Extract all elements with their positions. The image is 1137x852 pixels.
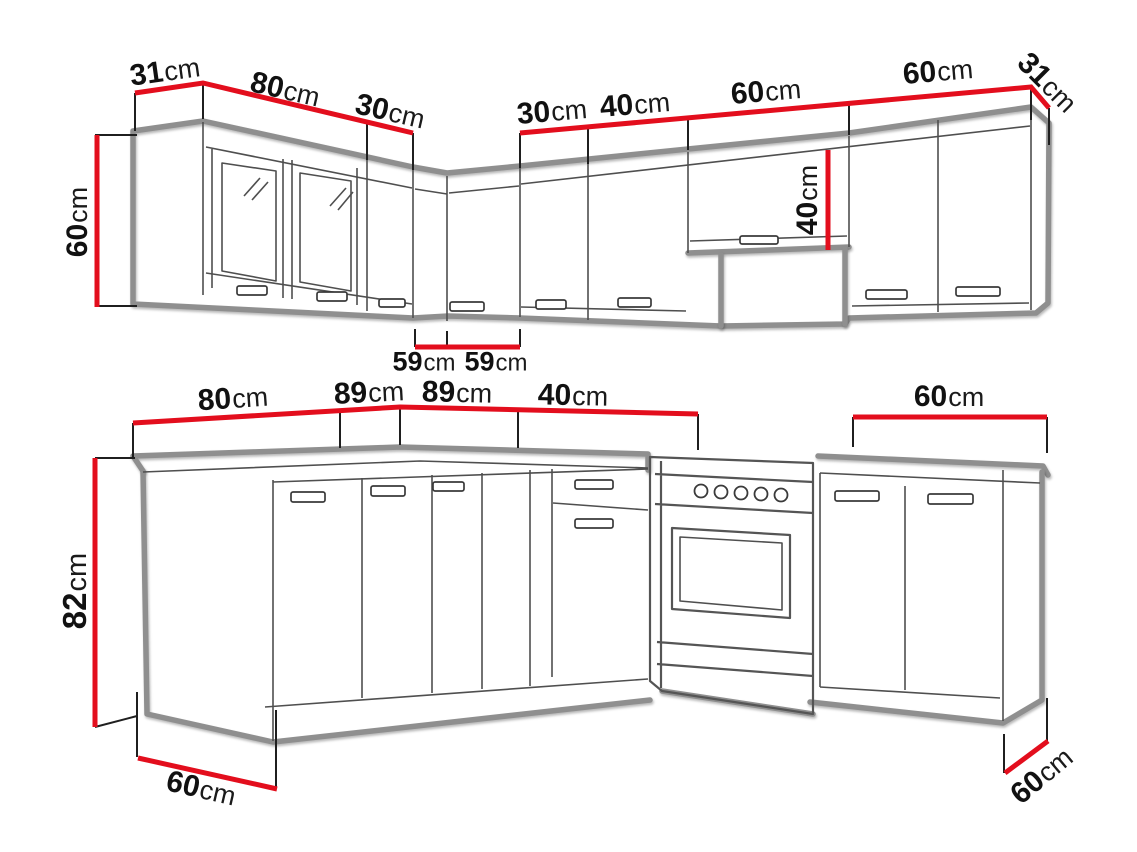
dim-label-wall-double-width: 60cm [902,54,975,90]
dim-label-base-left-width: 89cm [333,376,405,410]
oven-window-inner [680,537,782,610]
dim-label-hood-height: 40cm [793,165,823,235]
cooker-knobs [695,485,788,502]
dim-label-base-height: 82cm [58,553,92,629]
cooker [650,457,813,714]
wall-cabinets-drawing [133,107,1049,326]
dim-label-wall-door40: 40cm [599,87,672,123]
countertop-left [133,447,648,471]
base-cabinets-drawing [133,447,1048,742]
oven-window [672,528,790,618]
dim-label-wall-door30-right: 30cm [516,94,589,130]
dim-label-base-corner-width: 80cm [197,382,269,417]
base-cabinets-details [143,461,1040,741]
base-right-outline [810,472,1042,723]
dim-label-wall-height: 60cm [63,187,93,257]
dim-label-wall-hood-width: 60cm [730,74,803,110]
wall-cabinets-details [203,108,1031,321]
countertop-right [818,456,1048,475]
dim-label-corner-depth-a: 59cm [392,349,455,376]
glass-shine-marks [244,178,353,210]
kitchen-dimension-diagram: 31cm 80cm 30cm 30cm 40cm 60cm 60cm 31cm … [0,0,1137,852]
base-cabinet-handles [291,480,973,528]
dimension-ticks [95,83,1049,788]
dim-label-base-right-width: 89cm [422,377,493,408]
dim-label-corner-depth-b: 59cm [464,349,527,376]
cooker-outline [650,457,813,714]
kitchen-line-art [0,0,1137,852]
base-left-outline [143,471,650,742]
dim-label-base-double-width: 60cm [914,382,984,412]
dim-label-base-drawer-width: 40cm [538,380,609,411]
dimension-lines [95,83,1049,789]
hood-cabinet-bottom-edge [688,247,849,253]
